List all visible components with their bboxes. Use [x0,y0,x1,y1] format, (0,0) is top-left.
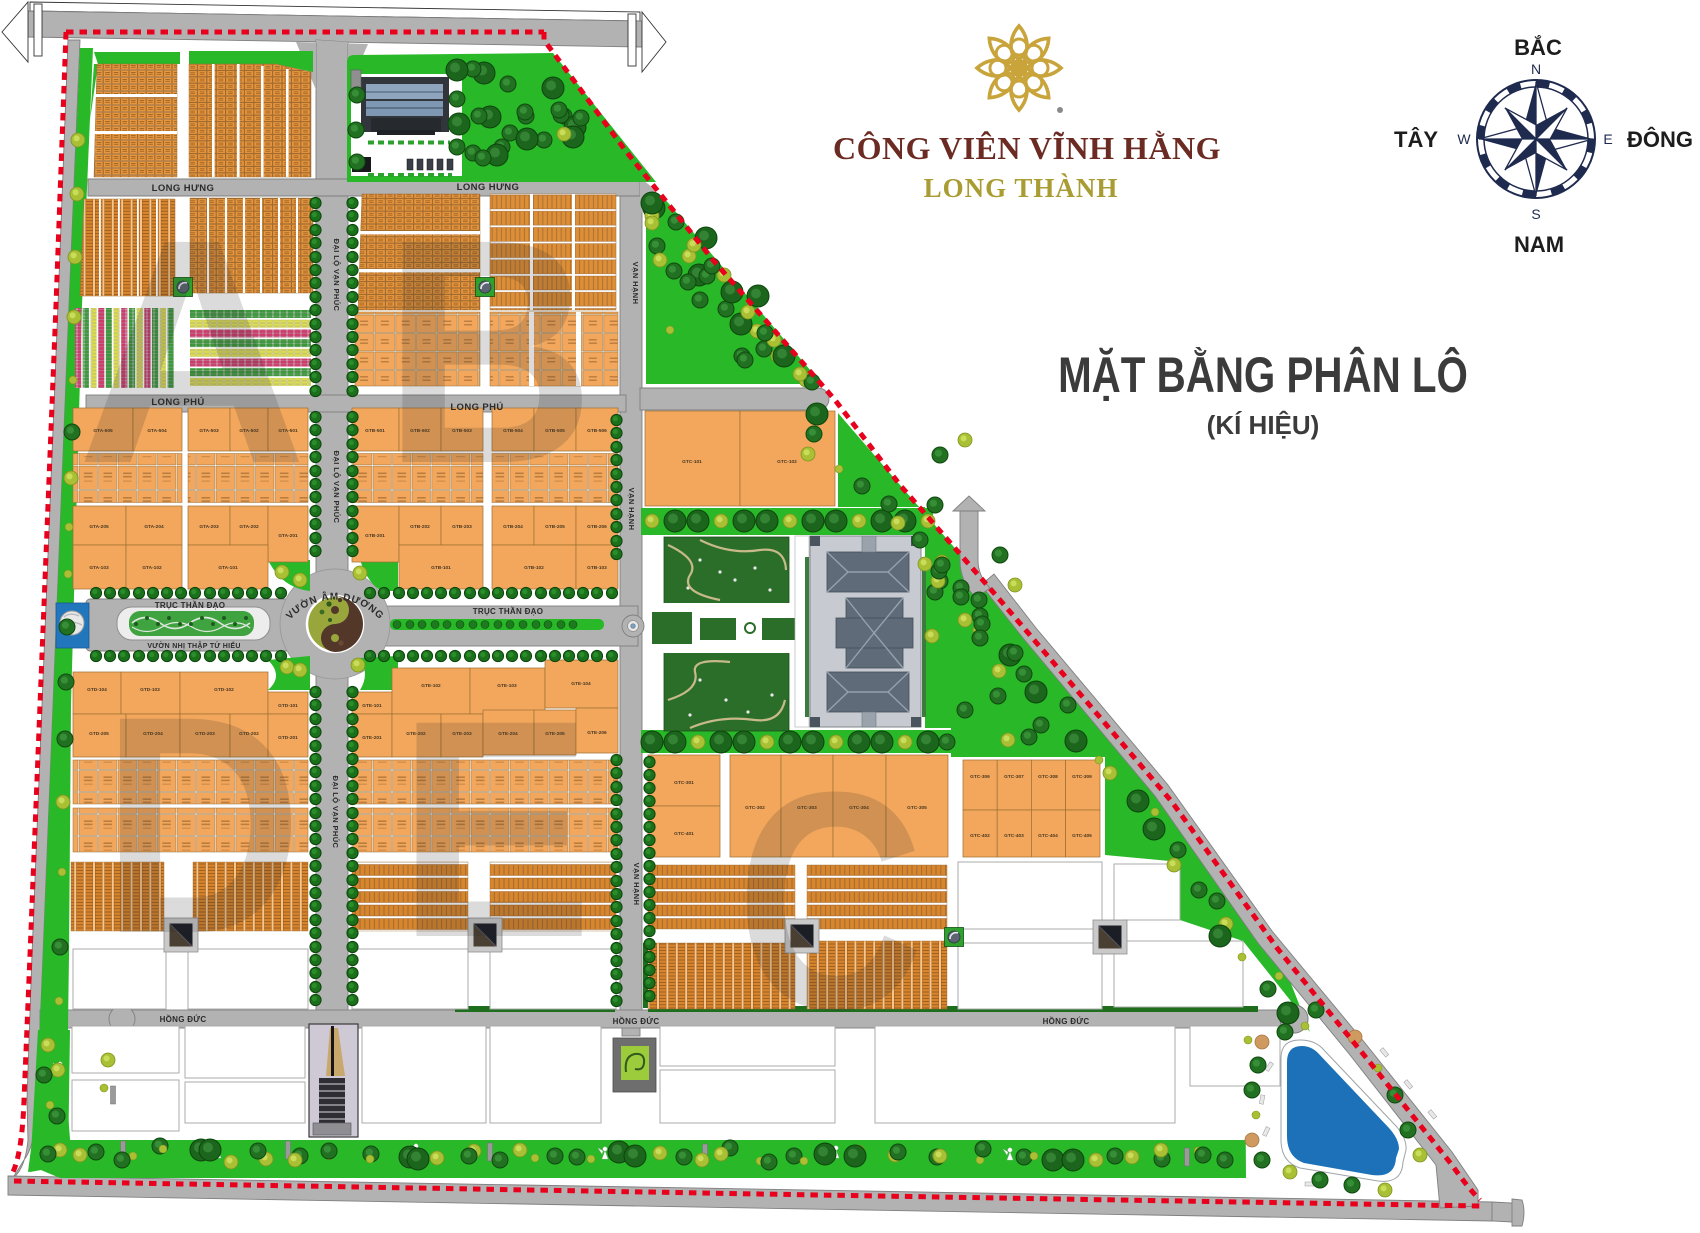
svg-text:D: D [101,652,302,998]
svg-text:GTD-205: GTD-205 [89,731,109,737]
svg-text:GTE-203: GTE-203 [452,731,472,737]
svg-text:GTC-404: GTC-404 [1038,833,1058,839]
svg-text:GTA-501: GTA-501 [278,428,298,434]
svg-text:GTB-101: GTB-101 [431,565,451,571]
svg-text:GTB-201: GTB-201 [365,533,385,539]
svg-text:GTA-502: GTA-502 [239,428,259,434]
svg-text:GTA-101: GTA-101 [218,565,238,571]
svg-text:GTC-403: GTC-403 [1004,833,1024,839]
svg-text:GTE-201: GTE-201 [362,735,382,741]
svg-text:GTD-204: GTD-204 [143,731,163,737]
svg-text:GTD-103: GTD-103 [140,687,160,693]
svg-text:HỒNG ĐỨC: HỒNG ĐỨC [160,1014,207,1024]
svg-text:GTB-503: GTB-503 [452,428,472,434]
svg-text:ĐÔNG: ĐÔNG [1627,127,1693,152]
svg-text:GTB-502: GTB-502 [410,428,430,434]
svg-text:GTE-202: GTE-202 [406,731,426,737]
svg-text:VẠN HẠNH: VẠN HẠNH [631,262,640,305]
svg-text:ĐẠI LỘ VẠN PHÚC: ĐẠI LỘ VẠN PHÚC [331,776,340,849]
svg-text:GTA-205: GTA-205 [89,524,109,530]
svg-text:GTB-205: GTB-205 [545,524,565,530]
svg-text:GTB-203: GTB-203 [452,524,472,530]
svg-text:GTC-402: GTC-402 [970,833,990,839]
svg-text:GTB-505: GTB-505 [545,428,565,434]
svg-text:VẠN HẠNH: VẠN HẠNH [632,863,641,906]
svg-text:W: W [1457,131,1471,147]
svg-text:B: B [383,174,596,531]
svg-text:LONG THÀNH: LONG THÀNH [924,173,1119,203]
svg-text:GTC-401: GTC-401 [674,831,694,837]
svg-text:GTA-203: GTA-203 [199,524,219,530]
svg-text:GTE-103: GTE-103 [497,683,517,689]
svg-text:HỒNG ĐỨC: HỒNG ĐỨC [613,1016,660,1026]
svg-text:GTE-102: GTE-102 [421,683,441,689]
svg-text:GTC-304: GTC-304 [849,805,869,811]
svg-text:GTD-202: GTD-202 [239,731,259,737]
svg-text:GTC-102: GTC-102 [777,459,797,465]
svg-text:CÔNG VIÊN VĨNH HẰNG: CÔNG VIÊN VĨNH HẰNG [833,130,1221,166]
svg-text:GTD-201: GTD-201 [278,735,298,741]
svg-text:GTD-101: GTD-101 [278,703,298,709]
svg-text:GTB-202: GTB-202 [410,524,430,530]
svg-text:GTB-501: GTB-501 [365,428,385,434]
svg-text:GTA-503: GTA-503 [199,428,219,434]
svg-text:GTC-305: GTC-305 [907,805,927,811]
svg-text:GTB-206: GTB-206 [587,524,607,530]
svg-text:GTB-504: GTB-504 [503,428,523,434]
svg-text:LONG PHÚ: LONG PHÚ [151,396,204,408]
svg-text:HỒNG ĐỨC: HỒNG ĐỨC [1043,1016,1090,1026]
svg-text:E: E [397,656,593,1003]
svg-text:GTC-405: GTC-405 [1072,833,1092,839]
svg-text:MẶT BẰNG PHÂN LÔ: MẶT BẰNG PHÂN LÔ [1058,346,1468,403]
svg-text:GTA-103: GTA-103 [89,565,109,571]
svg-text:GTA-201: GTA-201 [278,533,298,539]
svg-text:GTA-505: GTA-505 [93,428,113,434]
svg-text:TRỤC THẦN ĐẠO: TRỤC THẦN ĐẠO [155,600,226,610]
svg-text:GTA-202: GTA-202 [239,524,259,530]
svg-text:LONG PHÚ: LONG PHÚ [450,401,503,413]
svg-text:NAM: NAM [1514,232,1564,257]
svg-text:GTB-506: GTB-506 [587,428,607,434]
svg-text:GTD-104: GTD-104 [87,687,107,693]
svg-text:GTA-204: GTA-204 [144,524,164,530]
svg-text:ĐẠI LỘ VẠN PHÚC: ĐẠI LỘ VẠN PHÚC [332,451,341,524]
svg-text:GTC-308: GTC-308 [1038,774,1058,780]
svg-text:GTC-307: GTC-307 [1004,774,1024,780]
svg-text:GTD-203: GTD-203 [195,731,215,737]
svg-text:GTC-302: GTC-302 [745,805,765,811]
svg-text:GTA-102: GTA-102 [142,565,162,571]
svg-text:TRỤC THẦN ĐẠO: TRỤC THẦN ĐẠO [473,606,544,616]
svg-text:ĐẠI LỘ VẠN PHÚC: ĐẠI LỘ VẠN PHÚC [332,239,341,312]
svg-text:GTC-306: GTC-306 [970,774,990,780]
svg-text:GTE-104: GTE-104 [571,681,591,687]
svg-text:LONG HƯNG: LONG HƯNG [152,183,215,194]
svg-text:E: E [1603,131,1612,147]
svg-text:C: C [736,728,924,1075]
svg-text:GTE-206: GTE-206 [587,730,607,736]
svg-text:GTC-301: GTC-301 [674,780,694,786]
svg-text:TÂY: TÂY [1394,127,1438,152]
svg-text:GTC-309: GTC-309 [1072,774,1092,780]
svg-text:GTE-101: GTE-101 [362,703,382,709]
svg-text:GTB-204: GTB-204 [503,524,523,530]
svg-text:(KÍ HIỆU): (KÍ HIỆU) [1207,410,1320,440]
svg-text:A: A [76,172,307,530]
svg-text:GTD-102: GTD-102 [214,687,234,693]
svg-text:GTC-303: GTC-303 [797,805,817,811]
svg-text:N: N [1531,61,1541,77]
svg-text:GTC-101: GTC-101 [682,459,702,465]
svg-text:LONG HƯNG: LONG HƯNG [457,182,520,193]
svg-text:S: S [1531,206,1540,222]
svg-text:GTB-102: GTB-102 [524,565,544,571]
svg-text:GTA-504: GTA-504 [147,428,167,434]
svg-text:GTE-204: GTE-204 [498,731,518,737]
svg-text:GTB-103: GTB-103 [587,565,607,571]
svg-text:GTE-205: GTE-205 [545,731,565,737]
svg-text:BẮC: BẮC [1514,35,1562,60]
svg-text:VẠN HẠNH: VẠN HẠNH [627,488,636,531]
